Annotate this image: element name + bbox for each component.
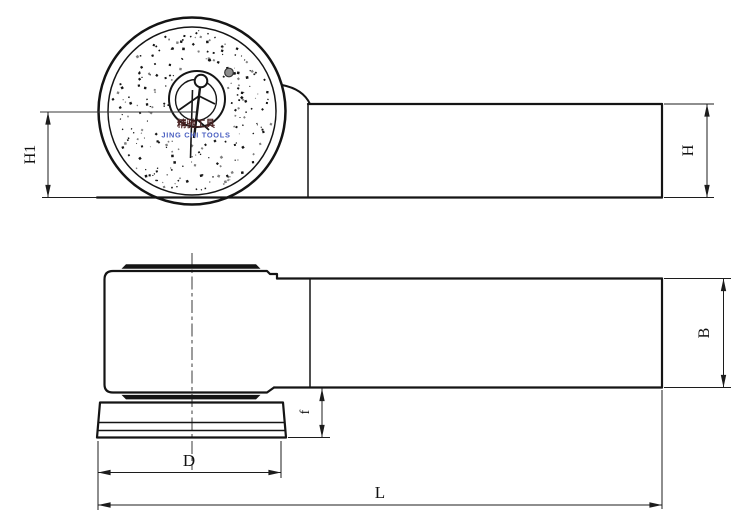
speckle-dot	[163, 186, 166, 189]
speckle-dot	[251, 70, 254, 73]
speckle-dot	[120, 118, 122, 120]
speckle-dot	[237, 71, 240, 74]
dimension-d: D	[98, 441, 281, 510]
speckle-dot	[128, 137, 130, 139]
brand-text-chinese: 精驰工具	[177, 118, 216, 130]
speckle-dot	[246, 76, 249, 79]
speckle-dot	[150, 146, 151, 147]
speckle-dot	[244, 59, 246, 61]
speckle-dot	[136, 55, 140, 59]
speckle-dot	[165, 85, 167, 87]
speckle-dot	[217, 174, 220, 177]
speckle-dot	[234, 68, 235, 69]
speckle-dot	[155, 133, 158, 136]
speckle-dot	[207, 33, 209, 35]
speckle-dot	[269, 123, 272, 126]
speckle-dot	[141, 145, 143, 147]
speckle-dot	[172, 141, 173, 142]
speckle-dot	[238, 84, 240, 86]
wheel-flange-band	[122, 395, 261, 400]
speckle-dot	[195, 188, 197, 190]
speckle-dot	[262, 131, 265, 134]
speckle-dot	[237, 159, 238, 160]
speckle-dot	[224, 180, 227, 183]
logo-figure-arm-left	[179, 96, 199, 110]
speckle-dot	[144, 137, 145, 138]
speckle-dot	[201, 189, 203, 191]
speckle-dot	[257, 93, 258, 94]
speckle-dot	[111, 98, 114, 101]
speckle-dot	[222, 54, 224, 56]
speckle-dot	[224, 141, 226, 143]
speckle-dot	[221, 49, 224, 52]
speckle-dot	[197, 50, 200, 53]
speckle-dot	[256, 123, 258, 125]
speckle-dot	[235, 160, 236, 161]
speckle-dot	[120, 86, 123, 89]
speckle-dot	[137, 105, 138, 106]
speckle-dot	[208, 157, 209, 158]
speckle-dot	[208, 57, 211, 60]
speckle-dot	[146, 99, 148, 101]
speckle-dot	[141, 129, 144, 132]
speckle-dot	[261, 127, 262, 128]
speckle-dot	[221, 45, 225, 49]
speckle-dot	[154, 89, 156, 91]
speckle-dot	[234, 109, 237, 112]
side-view	[97, 253, 662, 470]
h-dimension-label: H	[680, 144, 697, 156]
speckle-dot	[179, 68, 182, 71]
speckle-dot	[200, 154, 202, 156]
speckle-dot	[250, 108, 252, 110]
speckle-dot	[125, 101, 127, 103]
speckle-dot	[240, 117, 241, 118]
speckle-dot	[227, 179, 230, 182]
speckle-dot	[259, 143, 262, 146]
speckle-dot	[213, 139, 216, 142]
screw-dot	[225, 68, 234, 77]
speckle-dot	[236, 142, 237, 143]
speckle-dot	[156, 170, 158, 172]
technical-drawing-canvas: 精驰工具 JING CHI TOOLS H1 H	[0, 0, 750, 523]
speckle-dot	[167, 141, 169, 143]
speckle-dot	[165, 144, 168, 147]
speckle-dot	[194, 164, 196, 166]
speckle-dot	[249, 86, 250, 87]
speckle-dot	[235, 126, 238, 129]
dimension-f: f	[288, 389, 330, 438]
speckle-dot	[263, 78, 266, 81]
speckle-dot	[123, 99, 124, 100]
speckle-dot	[171, 169, 173, 171]
speckle-dot	[154, 63, 156, 65]
speckle-dot	[231, 102, 233, 104]
speckle-dot	[138, 78, 141, 81]
head-top-cap-band	[122, 264, 261, 269]
speckle-dot	[171, 151, 173, 153]
speckle-dot	[231, 83, 232, 84]
speckle-dot	[122, 114, 123, 115]
speckle-dot	[237, 87, 240, 90]
speckle-dot	[152, 175, 153, 176]
speckle-dot	[195, 32, 198, 35]
speckle-dot	[233, 126, 235, 128]
speckle-dot	[169, 74, 172, 77]
speckle-dot	[127, 116, 129, 118]
speckle-dot	[186, 180, 189, 183]
speckle-dot	[266, 102, 268, 104]
speckle-dot	[241, 55, 242, 56]
speckle-dot	[224, 43, 226, 45]
speckle-dot	[206, 58, 208, 60]
speckle-dot	[242, 124, 244, 126]
speckle-dot	[154, 91, 156, 93]
speckle-dot	[192, 43, 195, 46]
speckle-dot	[154, 173, 155, 174]
speckle-dot	[166, 174, 168, 176]
speckle-dot	[241, 146, 244, 149]
speckle-dot	[164, 35, 167, 38]
speckle-dot	[145, 175, 148, 178]
speckle-dot	[176, 41, 179, 44]
speckle-dot	[220, 156, 223, 159]
speckle-dot	[243, 116, 246, 119]
speckle-dot	[179, 177, 181, 179]
speckle-dot	[174, 183, 176, 185]
speckle-dot	[239, 133, 240, 134]
head-housing-outline	[105, 271, 278, 393]
speckle-dot	[173, 75, 175, 77]
h1-dimension-label: H1	[22, 145, 39, 165]
speckle-dot	[234, 144, 236, 146]
speckle-dot	[149, 74, 150, 75]
speckle-dot	[145, 169, 146, 170]
speckle-dot	[155, 45, 157, 47]
speckle-dot	[195, 154, 196, 155]
speckle-dot	[182, 39, 184, 41]
speckle-dot	[227, 87, 230, 90]
speckle-dot	[219, 165, 221, 167]
speckle-dot	[241, 92, 243, 94]
speckle-dot	[170, 167, 171, 168]
speckle-dot	[190, 36, 192, 38]
speckle-dot	[137, 138, 139, 140]
speckle-dot	[261, 128, 263, 130]
speckle-dot	[245, 111, 247, 113]
speckle-dot	[117, 91, 120, 94]
speckle-dot	[217, 61, 220, 64]
speckle-dot	[252, 133, 254, 135]
speckle-dot	[119, 106, 122, 109]
speckle-dot	[238, 99, 240, 101]
speckle-dot	[147, 120, 148, 121]
speckle-dot	[214, 37, 216, 39]
top-view: 精驰工具 JING CHI TOOLS	[40, 18, 662, 205]
speckle-dot	[198, 30, 199, 31]
speckle-dot	[261, 108, 264, 111]
speckle-dot	[252, 161, 254, 163]
speckle-dot	[156, 140, 158, 142]
speckle-dot	[157, 167, 159, 169]
speckle-dot	[178, 148, 180, 150]
speckle-dot	[144, 87, 147, 90]
b-dimension-label: B	[696, 328, 713, 339]
speckle-dot	[213, 52, 215, 54]
speckle-dot	[131, 128, 133, 130]
speckle-dot	[141, 132, 143, 134]
speckle-dot	[212, 176, 214, 178]
speckle-dot	[234, 115, 236, 117]
speckle-dot	[207, 51, 209, 53]
speckle-dot	[127, 139, 129, 141]
dimension-h: H	[664, 104, 714, 198]
speckle-dot	[168, 39, 170, 41]
side-view-dimensions: B f D L	[98, 279, 731, 511]
speckle-dot	[237, 107, 240, 110]
speckle-dot	[182, 47, 185, 50]
speckle-dot	[171, 155, 174, 158]
speckle-dot	[121, 146, 124, 149]
speckle-dot	[241, 171, 244, 174]
speckle-dot	[208, 39, 210, 41]
speckle-dot	[252, 153, 255, 156]
speckle-dot	[176, 186, 177, 187]
speckle-dot	[191, 161, 192, 162]
speckle-dot	[122, 128, 124, 130]
speckle-dot	[199, 36, 202, 39]
speckle-dot	[138, 84, 140, 86]
l-dimension-label: L	[375, 483, 385, 502]
speckle-dot	[155, 74, 158, 77]
speckle-dot	[124, 142, 127, 145]
speckle-dot	[201, 147, 204, 150]
speckle-dot	[236, 47, 239, 50]
speckle-dot	[194, 37, 196, 39]
speckle-dot	[267, 99, 269, 101]
speckle-dot	[158, 49, 160, 51]
speckle-dot	[138, 157, 142, 161]
speckle-dot	[140, 55, 142, 57]
speckle-dot	[163, 105, 165, 107]
speckle-dot	[213, 59, 216, 62]
speckle-dot	[204, 143, 207, 146]
speckle-dot	[255, 72, 257, 74]
logo-figure-head	[195, 75, 208, 88]
speckle-dot	[141, 77, 142, 78]
speckle-dot	[119, 83, 121, 85]
speckle-dot	[266, 91, 269, 94]
d-dimension-label: D	[183, 451, 195, 470]
speckle-dot	[171, 79, 173, 81]
dimension-b: B	[664, 279, 731, 388]
speckle-dot	[136, 143, 137, 144]
brand-logo	[169, 71, 225, 158]
speckle-dot	[146, 103, 149, 106]
speckle-dot	[133, 132, 135, 134]
logo-figure-arm-right	[199, 96, 215, 104]
speckle-dot	[234, 54, 236, 56]
speckle-dot	[206, 41, 209, 44]
f-dimension-label: f	[298, 409, 313, 414]
speckle-dot	[128, 154, 131, 157]
speckle-dot	[151, 54, 154, 57]
speckle-dot	[140, 66, 143, 69]
top-view-dimensions: H1 H	[22, 104, 714, 198]
speckle-dot	[152, 44, 155, 47]
speckle-dot	[255, 98, 256, 99]
drawing-svg: 精驰工具 JING CHI TOOLS H1 H	[0, 0, 750, 523]
speckle-dot	[129, 102, 132, 105]
brand-text-english: JING CHI TOOLS	[161, 131, 230, 140]
speckle-dot	[177, 180, 179, 182]
speckle-dot	[237, 94, 239, 96]
speckle-dot	[191, 156, 192, 157]
speckle-dot	[245, 61, 248, 64]
speckle-dot	[166, 147, 167, 148]
speckle-dot	[128, 96, 130, 98]
speckle-dot	[222, 75, 224, 77]
speckle-dot	[216, 162, 219, 165]
speckle-dot	[257, 124, 258, 125]
speckle-dot	[163, 102, 166, 105]
speckle-dot	[243, 92, 244, 93]
speckle-dot	[205, 188, 207, 190]
speckle-dot	[171, 187, 173, 189]
speckle-dot	[229, 179, 230, 180]
speckle-dot	[231, 171, 234, 174]
speckle-dot	[182, 166, 183, 167]
speckle-dot	[157, 180, 159, 182]
speckle-dot	[237, 77, 240, 80]
speckle-dot	[173, 161, 176, 164]
speckle-dot	[149, 174, 151, 176]
speckle-dot	[136, 167, 138, 169]
dimension-l: L	[98, 390, 662, 509]
speckle-dot	[162, 182, 164, 184]
speckle-dot	[244, 100, 247, 103]
speckle-dot	[209, 181, 210, 182]
speckle-dot	[169, 64, 172, 67]
speckle-dot	[151, 106, 153, 108]
dimension-h1: H1	[22, 112, 48, 198]
speckle-dot	[198, 151, 201, 154]
speckle-dot	[164, 77, 166, 79]
speckle-dot	[183, 35, 185, 37]
